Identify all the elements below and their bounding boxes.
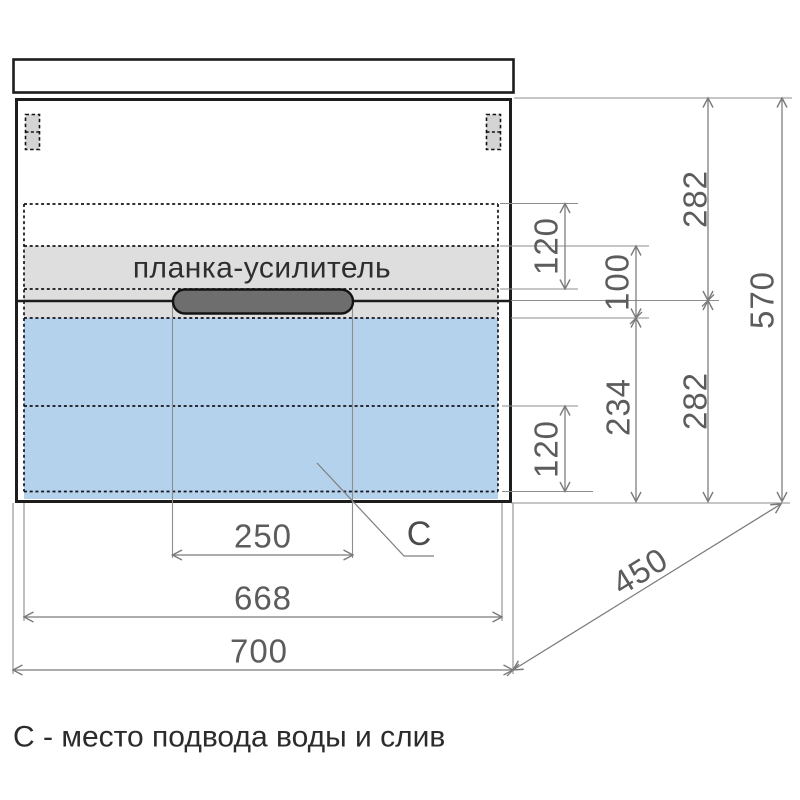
dim-label-120-lower: 120 — [528, 420, 565, 478]
dim-label-282-upper: 282 — [677, 170, 714, 228]
dim-upper-section-282: 282 — [677, 98, 714, 301]
dim-handle-width-250: 250 — [173, 518, 354, 556]
reinforcement-bar-label: планка-усилитель — [133, 252, 391, 285]
dim-label-234: 234 — [600, 378, 637, 436]
dim-drawer-inner-234: 234 — [600, 318, 637, 502]
dim-label-282-lower: 282 — [677, 372, 714, 430]
dim-bar-offset-100: 100 — [599, 246, 637, 318]
dim-lower-section-282: 282 — [677, 301, 714, 502]
drawing-svg: планка-усилитель 120 100 282 — [0, 0, 800, 800]
dim-label-700: 700 — [230, 633, 288, 670]
dim-label-120-upper: 120 — [528, 217, 565, 275]
dim-overall-width-700: 700 — [13, 633, 513, 671]
dim-label-100: 100 — [599, 253, 636, 311]
hinge-mark-left — [26, 115, 40, 150]
dim-label-668: 668 — [234, 580, 292, 617]
dim-depth-450: 450 — [513, 504, 781, 670]
caption: С - место подвода воды и слив — [13, 721, 445, 754]
dim-label-570: 570 — [744, 271, 781, 329]
dim-overall-height-570: 570 — [744, 98, 783, 502]
vanity-dimension-drawing: планка-усилитель 120 100 282 — [0, 0, 800, 800]
handle — [173, 290, 353, 314]
dim-label-250: 250 — [234, 518, 292, 555]
drawer-water-zone — [24, 318, 498, 499]
vanity-front-view: планка-усилитель — [14, 60, 514, 559]
dim-inner-width-668: 668 — [24, 580, 502, 618]
dim-upper-offset-120: 120 — [528, 204, 566, 290]
countertop — [14, 60, 514, 93]
hinge-mark-right — [487, 115, 501, 150]
drain-point-label: С — [407, 515, 432, 553]
dim-label-450: 450 — [606, 540, 675, 602]
dim-lower-offset-120: 120 — [528, 406, 566, 492]
